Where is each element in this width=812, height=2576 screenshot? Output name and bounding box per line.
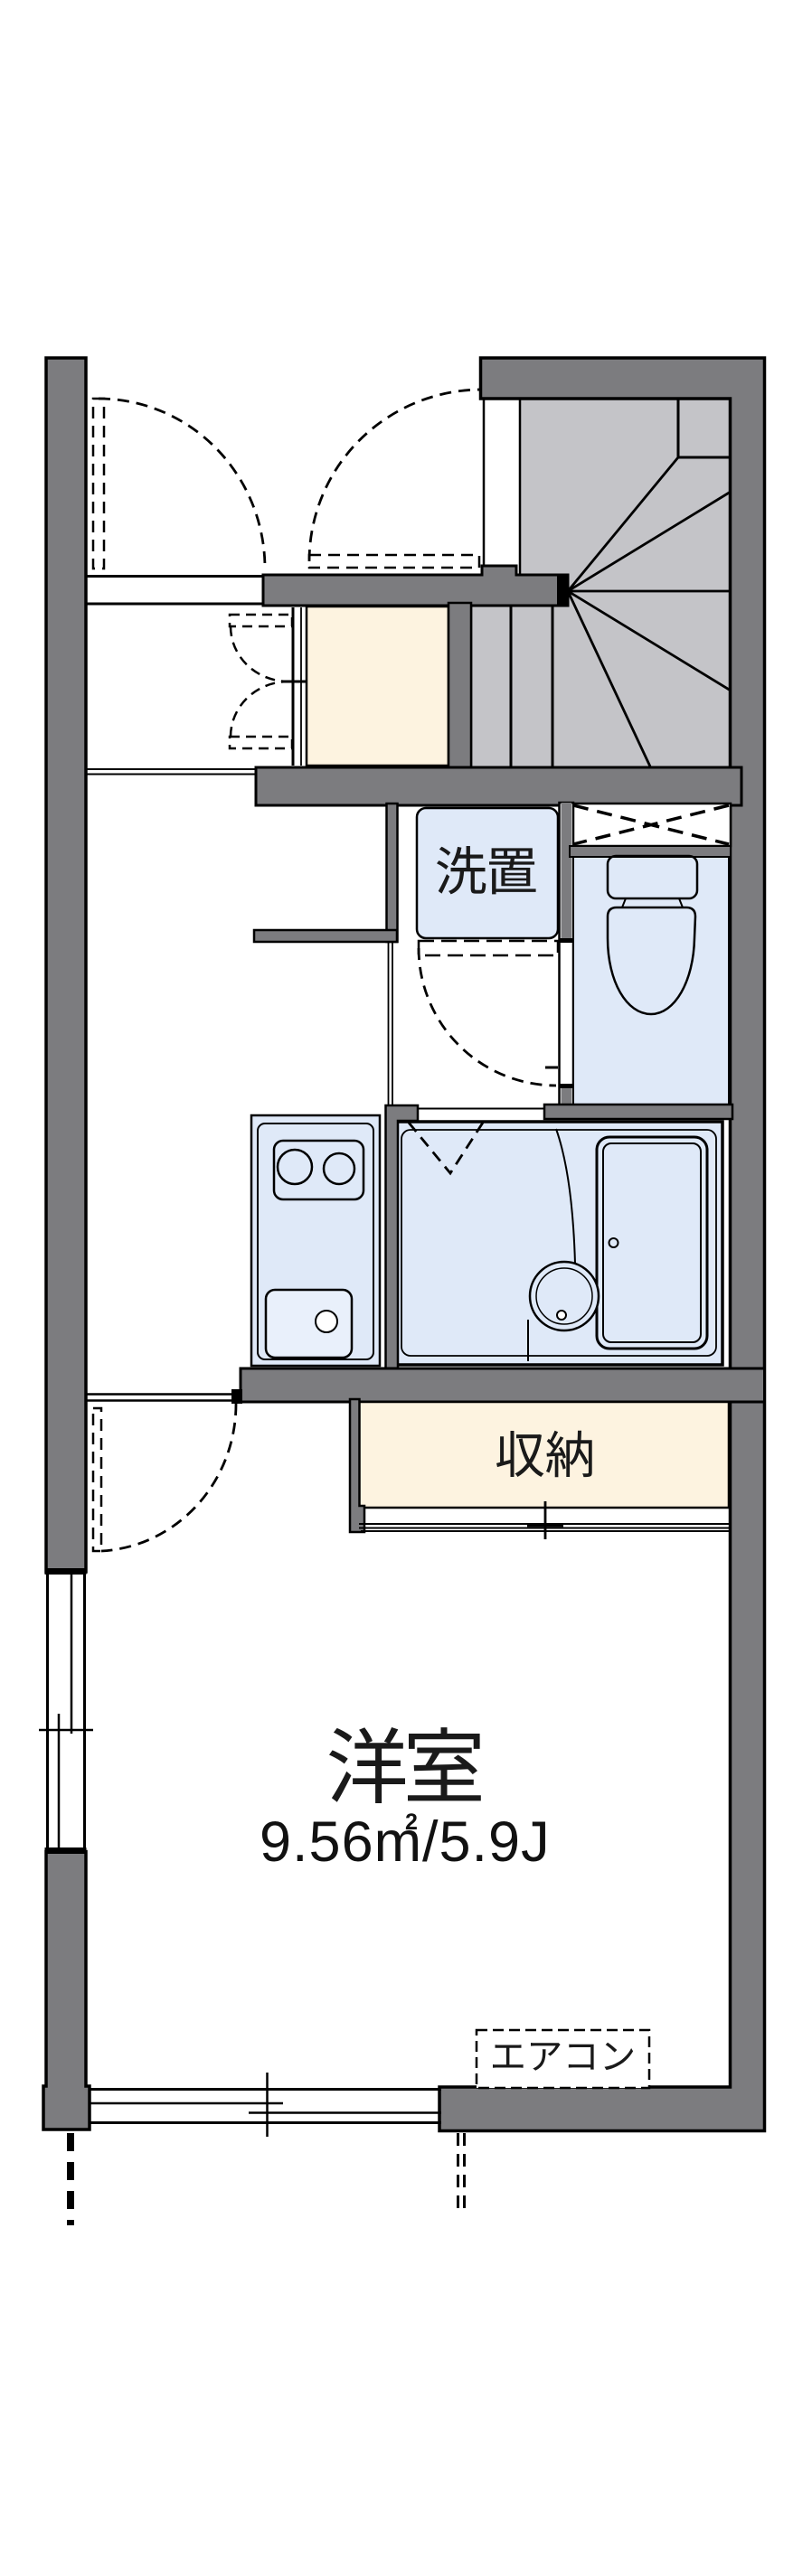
- svg-text:/5.9J: /5.9J: [422, 1810, 551, 1874]
- svg-text:2: 2: [405, 1810, 418, 1835]
- svg-text:9.56m: 9.56m: [260, 1810, 422, 1874]
